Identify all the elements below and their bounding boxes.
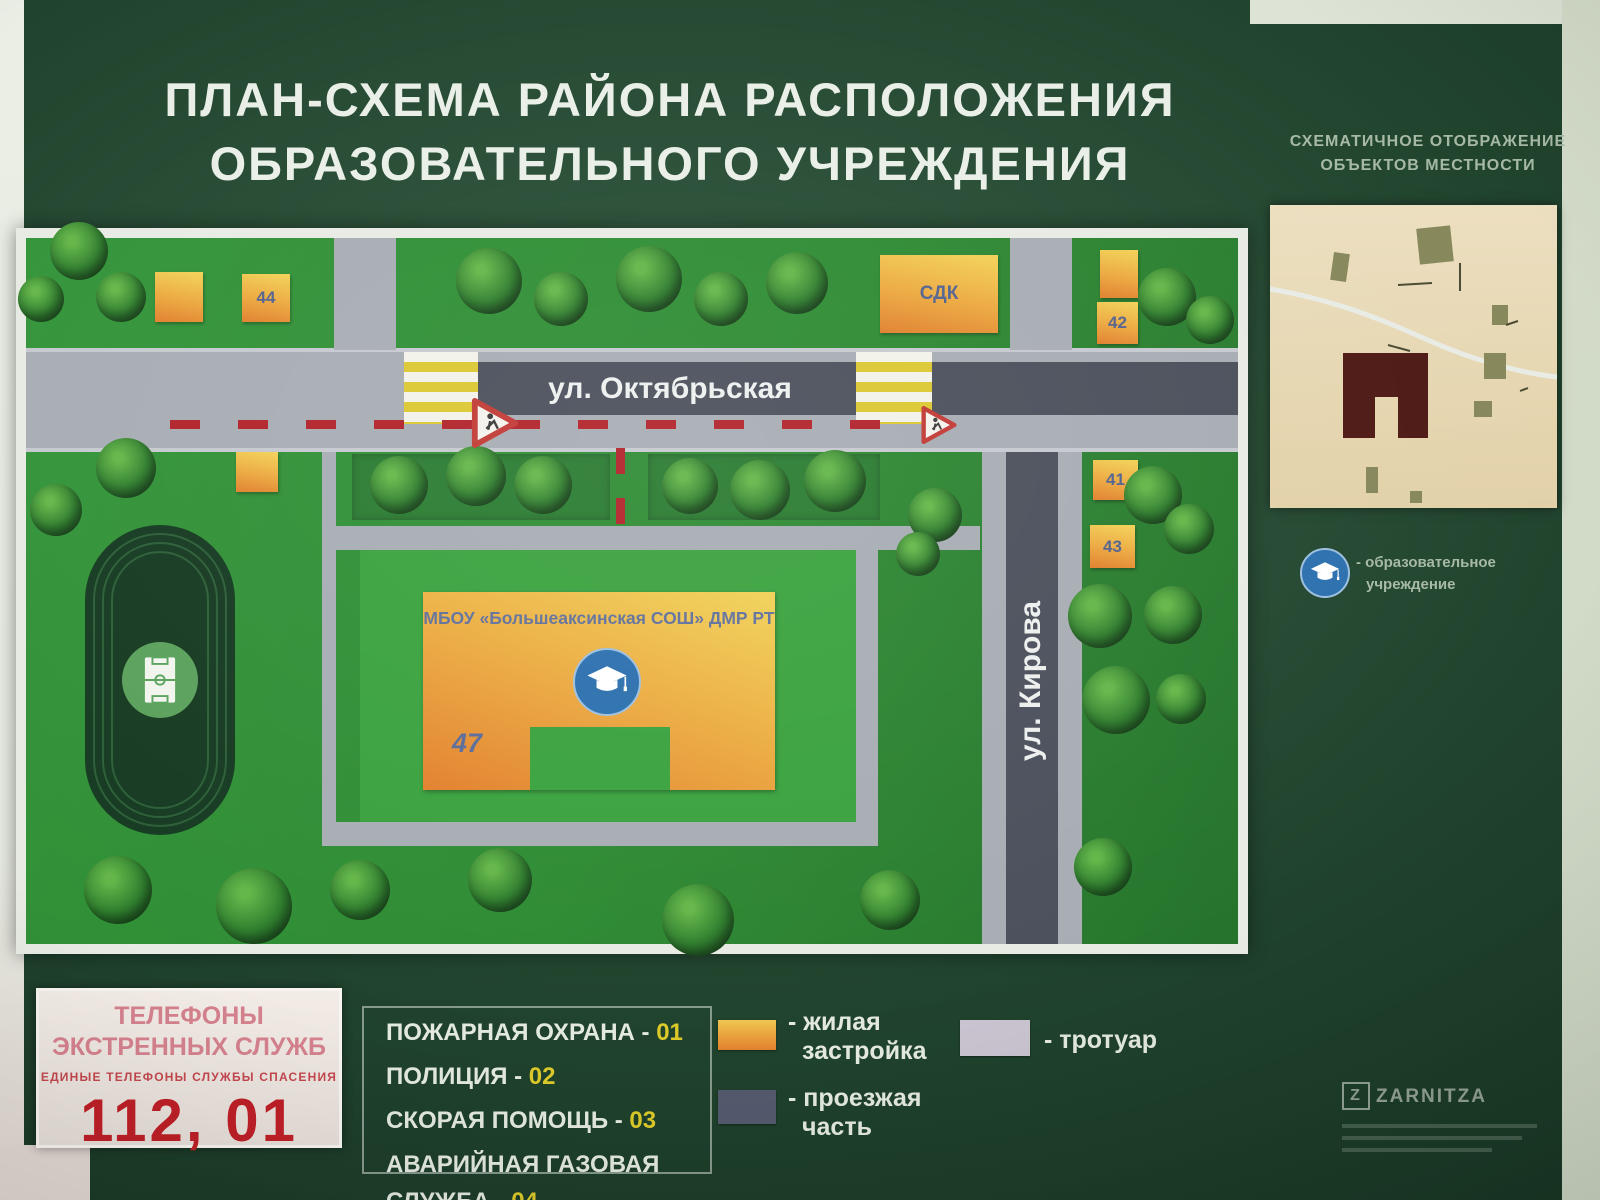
legend-sidewalk-label: - тротуар (1044, 1026, 1157, 1055)
pedestrian-crossing-west (404, 352, 478, 424)
tree-icon (804, 450, 866, 512)
legend-swatch-sidewalk (960, 1020, 1030, 1056)
residential-building-43: 43 (1090, 525, 1135, 568)
tree-icon (1144, 586, 1202, 644)
tree-icon (766, 252, 828, 314)
building-label: СДК (920, 283, 959, 305)
school-number-label: 47 (452, 728, 482, 759)
school-name-label: МБОУ «Большеаксинская СОШ» ДМР РТ (423, 608, 775, 629)
yard-sidewalk-top (322, 526, 980, 550)
legend-residential-label: - жилая застройка (788, 1008, 926, 1066)
school-building-notch (530, 727, 670, 790)
street-label-kirova: ул. Кирова (1014, 581, 1048, 781)
building-sdk: СДК (880, 255, 998, 333)
fine-print-line (1342, 1148, 1492, 1152)
minimap-heading-line2: ОБЪЕКТОВ МЕСТНОСТИ (1278, 157, 1578, 175)
wall-edge-top-right (1250, 0, 1600, 24)
legend-roadway-label: - проезжая часть (788, 1084, 921, 1142)
sports-field-icon (122, 642, 198, 718)
poster-title-line2: ОБРАЗОВАТЕЛЬНОГО УЧРЕЖДЕНИЯ (160, 136, 1180, 191)
terrain-minimap-drawing (1270, 205, 1557, 508)
tree-icon (1068, 584, 1132, 648)
tree-icon (662, 884, 734, 956)
yard-sidewalk-left (322, 452, 336, 846)
emergency-numbers: 112, 01 (39, 1086, 339, 1155)
tree-icon (468, 848, 532, 912)
fine-print-line (1342, 1136, 1522, 1140)
terrain-minimap (1270, 205, 1557, 508)
tree-icon (18, 276, 64, 322)
building-number: 41 (1106, 470, 1125, 490)
tree-icon (1074, 838, 1132, 896)
children-crossing-sign-icon (920, 402, 958, 448)
emergency-panel-subtitle: ЕДИНЫЕ ТЕЛЕФОНЫ СЛУЖБЫ СПАСЕНИЯ (39, 1070, 339, 1084)
legend-swatch-residential (718, 1020, 776, 1050)
service-fire: ПОЖАРНАЯ ОХРАНА - 01 (386, 1014, 702, 1051)
tree-icon (216, 868, 292, 944)
street-label-oktyabrskaya: ул. Октябрьская (500, 372, 840, 406)
tree-icon (860, 870, 920, 930)
service-police: ПОЛИЦИЯ - 02 (386, 1058, 702, 1095)
tree-icon (616, 246, 682, 312)
tree-icon (96, 438, 156, 498)
zarnitza-logo-icon: Z (1342, 1082, 1370, 1110)
building-number: 42 (1108, 313, 1127, 333)
school-location-plan-poster: ПЛАН-СХЕМА РАЙОНА РАСПОЛОЖЕНИЯ ОБРАЗОВАТ… (0, 0, 1600, 1200)
wall-edge-right (1562, 0, 1600, 1200)
safe-route-dashed-line (170, 420, 886, 429)
tree-icon (446, 446, 506, 506)
children-crossing-sign-icon (470, 396, 520, 450)
poster-title-line1: ПЛАН-СХЕМА РАЙОНА РАСПОЛОЖЕНИЯ (160, 72, 1180, 127)
building-number: 43 (1103, 537, 1122, 557)
edu-legend-label: - образовательное учреждение (1356, 552, 1496, 596)
tree-icon (534, 272, 588, 326)
tree-icon (730, 460, 790, 520)
tree-icon (662, 458, 718, 514)
graduation-cap-icon (1300, 548, 1350, 598)
minimap-heading-line1: СХЕМАТИЧНОЕ ОТОБРАЖЕНИЕ (1278, 133, 1578, 151)
road-vertical-top-right (1010, 238, 1072, 350)
tree-icon (30, 484, 82, 536)
tree-icon (456, 248, 522, 314)
tree-icon (514, 456, 572, 514)
tree-icon (1082, 666, 1150, 734)
tree-icon (96, 272, 146, 322)
zarnitza-logo-text: ZARNITZA (1376, 1086, 1487, 1108)
yard-sidewalk-right (856, 550, 878, 846)
graduation-cap-icon (573, 648, 641, 716)
emergency-panel-title: ТЕЛЕФОНЫ ЭКСТРЕННЫХ СЛУЖБ (39, 991, 339, 1062)
residential-building-44: 44 (242, 274, 290, 322)
tree-icon (330, 860, 390, 920)
fine-print-line (1342, 1124, 1537, 1128)
tree-icon (694, 272, 748, 326)
tree-icon (1156, 674, 1206, 724)
tree-icon (370, 456, 428, 514)
residential-building (236, 452, 278, 492)
stadium-track (85, 525, 235, 835)
road-vertical-top-left (334, 238, 396, 350)
service-ambulance: СКОРАЯ ПОМОЩЬ - 03 (386, 1102, 702, 1139)
building-number: 44 (257, 288, 276, 308)
tree-icon (896, 532, 940, 576)
residential-building-42: 42 (1097, 302, 1138, 344)
tree-icon (1186, 296, 1234, 344)
residential-building (1100, 250, 1138, 298)
tree-icon (1164, 504, 1214, 554)
residential-building (155, 272, 203, 322)
legend-swatch-roadway (718, 1090, 776, 1124)
tree-icon (84, 856, 152, 924)
safe-route-dashed-line-vertical (616, 448, 625, 530)
emergency-phones-panel: ТЕЛЕФОНЫ ЭКСТРЕННЫХ СЛУЖБ ЕДИНЫЕ ТЕЛЕФОН… (36, 988, 342, 1148)
service-gas: АВАРИЙНАЯ ГАЗОВАЯ СЛУЖБА - 04 (386, 1146, 702, 1200)
yard-sidewalk-bottom (334, 822, 878, 846)
tree-icon (50, 222, 108, 280)
